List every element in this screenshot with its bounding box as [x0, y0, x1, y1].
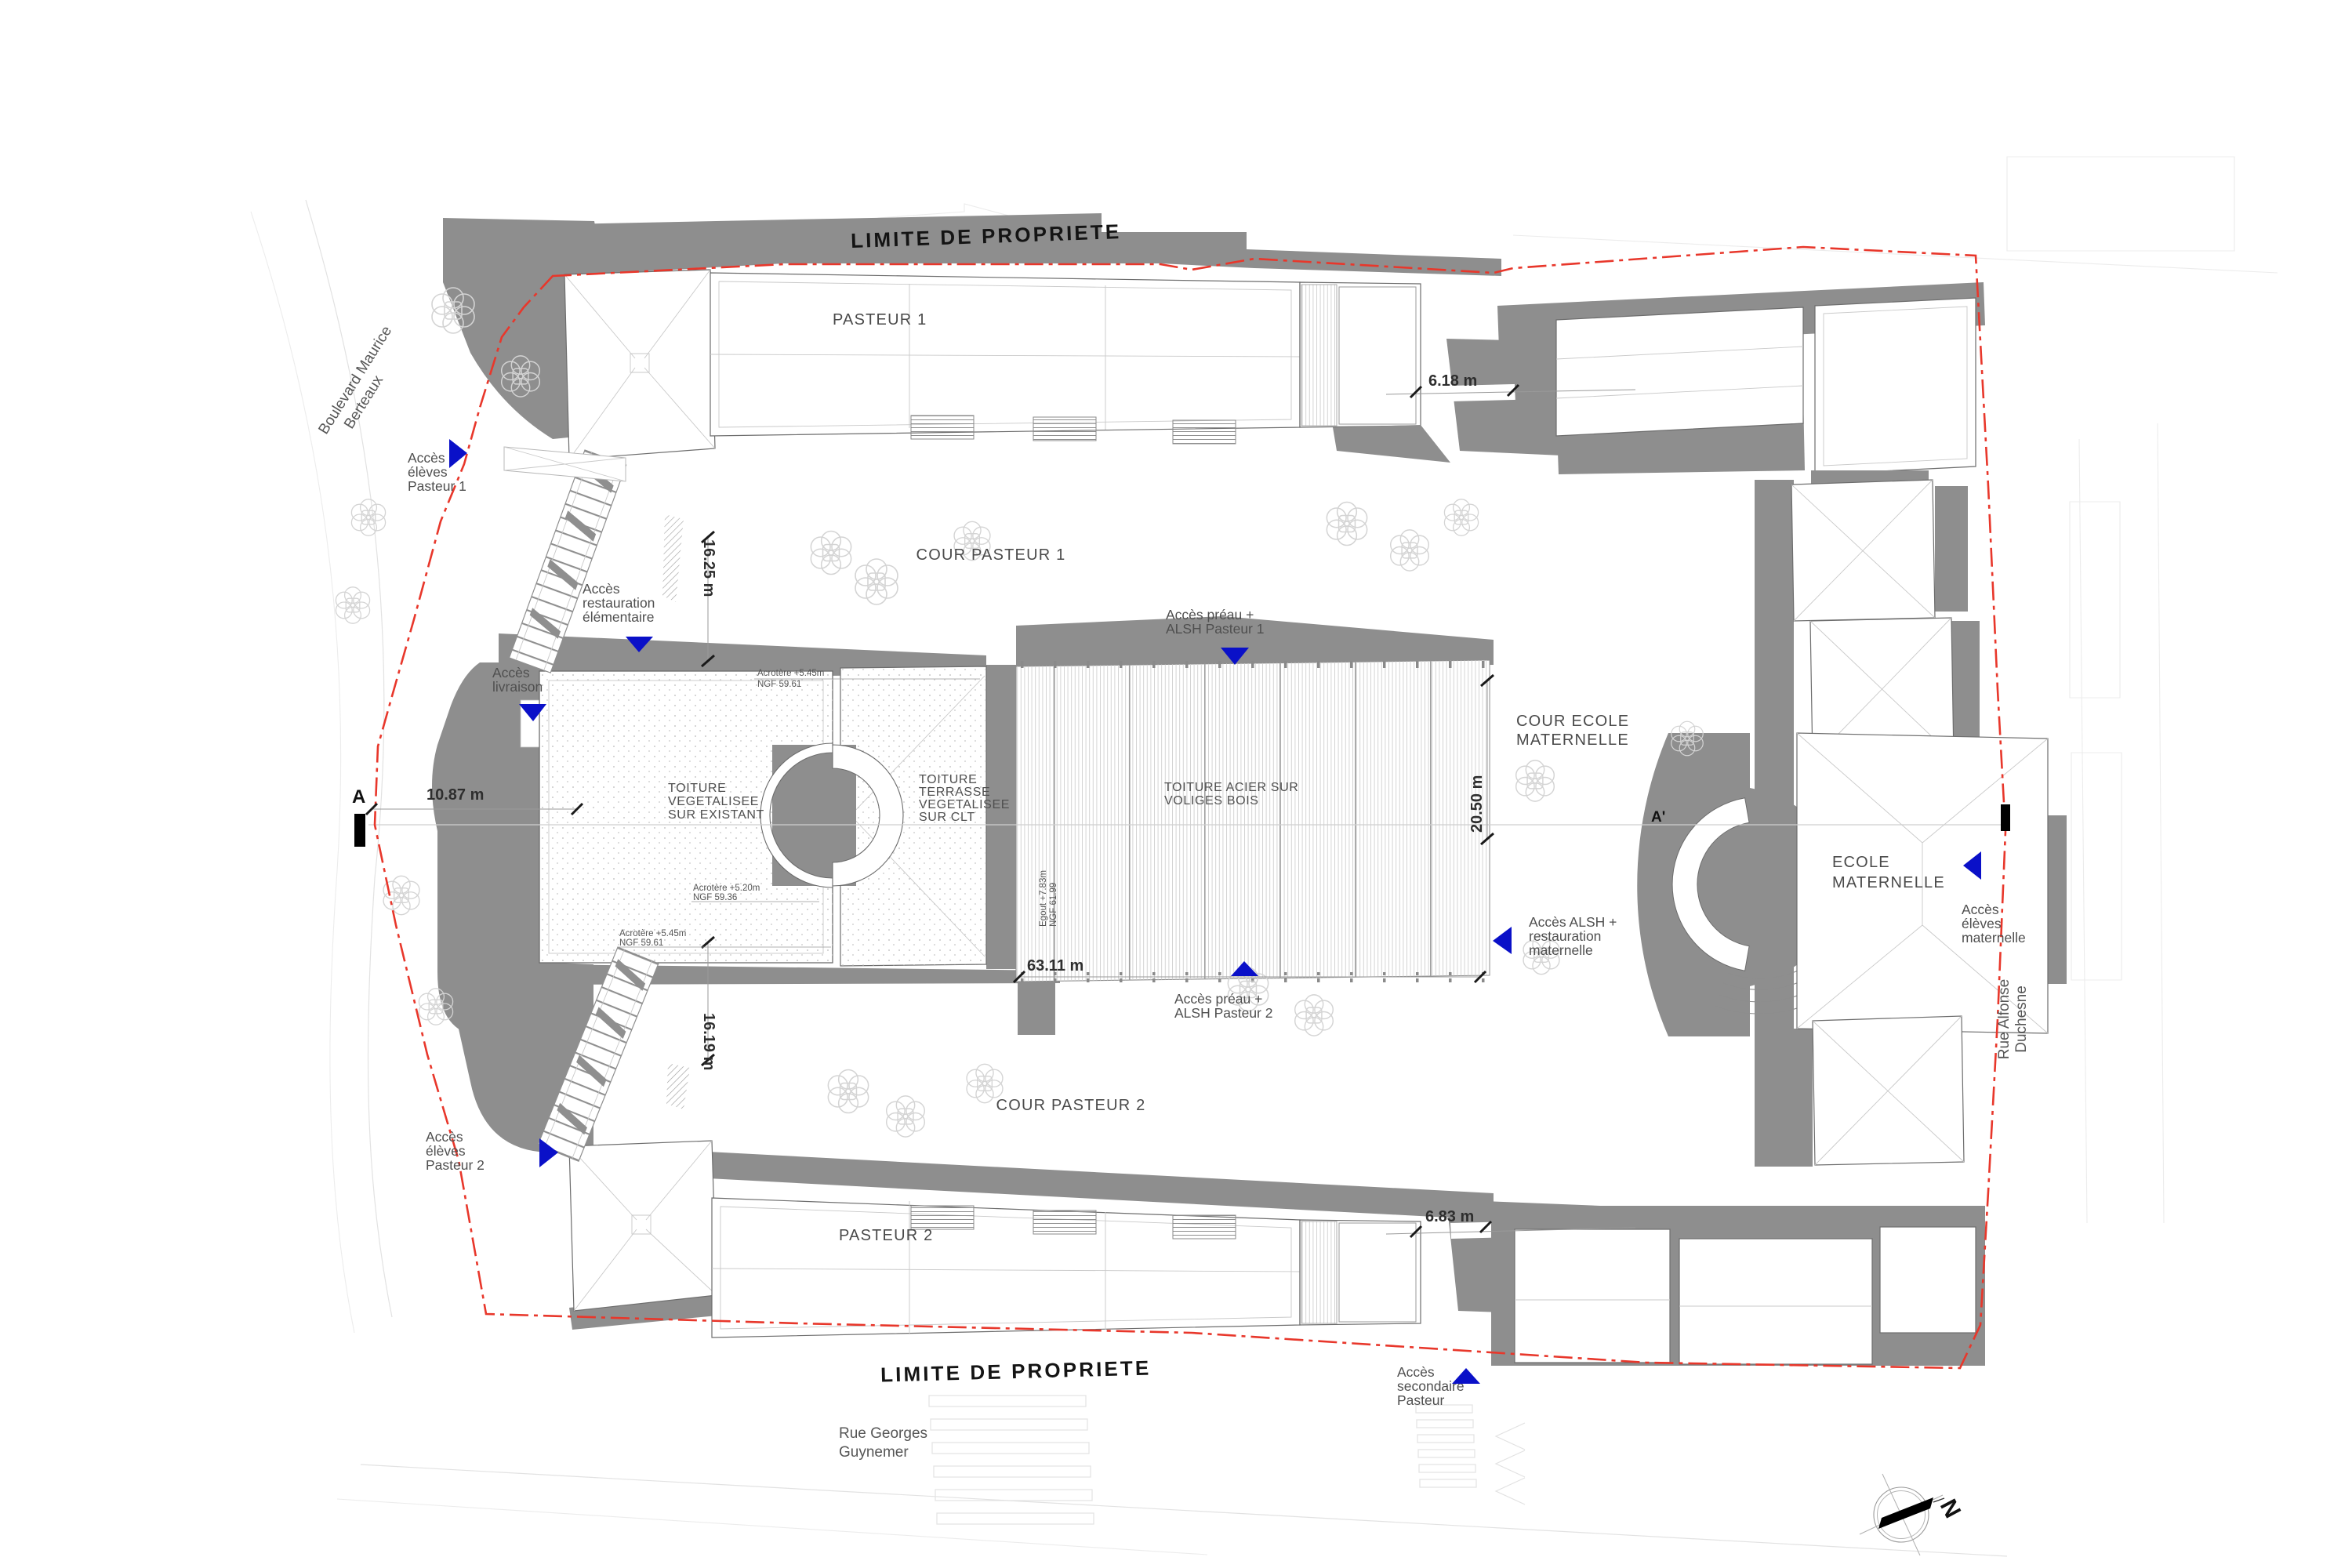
pasteur1-long-roof — [710, 273, 1300, 436]
ter-line4: SUR CLT — [919, 811, 975, 824]
bottom-right-roof-1 — [1515, 1229, 1670, 1363]
acrotere-s-line1: Acrotère +5.45m — [619, 929, 686, 938]
access-secondaire: Accès secondaire Pasteur — [1397, 1364, 1480, 1408]
cour-ecole-maternelle-label: COUR ECOLE MATERNELLE — [1516, 713, 1629, 749]
acc-alsh-l1: Accès ALSH + — [1529, 914, 1617, 930]
pasteur2-east-wing-panel — [1339, 1223, 1416, 1322]
building-pasteur2 — [569, 1141, 1494, 1338]
access-alsh-maternelle: Accès ALSH + restauration maternelle — [1493, 914, 1617, 958]
acc-ep1-l2: élèves — [408, 464, 448, 480]
bottom-street-line-1 — [361, 1465, 2007, 1556]
maternelle-gray-2 — [1951, 621, 1980, 754]
acc-em-l3: maternelle — [1962, 930, 2026, 946]
acc-em-l1: Accès — [1962, 902, 1999, 917]
acc-ep1-l3: Pasteur 1 — [408, 478, 466, 494]
access-arrow-secondaire — [1452, 1368, 1480, 1384]
acc-ep2-l2: élèves — [426, 1143, 466, 1159]
acc-sec-l1: Accès — [1397, 1364, 1435, 1380]
section-a-prime-bar — [2001, 804, 2010, 831]
parking-slots-center — [1416, 1405, 1476, 1487]
pasteur1-pavilion-roof — [564, 270, 715, 459]
acier-line2: VOLIGES BOIS — [1164, 794, 1259, 808]
veg-line3: SUR EXISTANT — [668, 808, 764, 822]
acc-ep1-l1: Accès — [408, 450, 445, 466]
top-right-street-line — [1513, 235, 2278, 273]
acrotere-mid-line2: NGF 59.36 — [693, 893, 737, 902]
veg-line2: VEGETALISEE — [668, 795, 759, 808]
site-plan-canvas: 16.25 m 16.19 m 10.87 m 20.50 m 63.11 m … — [0, 0, 2352, 1568]
veg-line1: TOITURE — [668, 782, 726, 795]
access-arrow-alsh — [1493, 927, 1512, 954]
center-south-wedge — [1018, 983, 1055, 1035]
pasteur2-east-wing-ribbed — [1301, 1221, 1337, 1323]
rue-georges-label: Rue Georges Guynemer — [839, 1425, 927, 1461]
acrotere-mid-line1: Acrotère +5.20m — [693, 884, 760, 893]
dim-63-11-label: 63.11 m — [1027, 957, 1083, 975]
ecole-maternelle-line2: MATERNELLE — [1832, 874, 1945, 891]
acc-em-l2: élèves — [1962, 916, 2002, 931]
hatch-wedge-south — [666, 1063, 690, 1109]
section-marker-left: A — [352, 786, 365, 847]
building-pasteur1 — [563, 213, 1501, 463]
egout-line1: Egout +7.83m — [1039, 870, 1048, 927]
pasteur2-label: PASTEUR 2 — [839, 1227, 933, 1244]
pasteur1-east-wing-ribbed — [1301, 285, 1337, 426]
dim-10-87-label: 10.87 m — [426, 786, 484, 804]
bottom-right-roof-2 — [1679, 1239, 1872, 1364]
rue-georges-line2: Guynemer — [839, 1444, 909, 1461]
acier-line1: TOITURE ACIER SUR — [1164, 781, 1299, 794]
hatch-wedge-north — [662, 514, 684, 602]
parking-slots-left — [929, 1396, 1094, 1524]
terrasse-east-band — [986, 665, 1016, 969]
dim-16-25-label: 16.25 m — [700, 539, 717, 597]
rue-alfonse-label: Rue Alfonse Duchesne — [1996, 979, 2030, 1059]
pasteur1-east-shadow — [1333, 425, 1450, 463]
bottom-street-line-2 — [337, 1499, 1207, 1555]
acc-alsh-l3: maternelle — [1529, 942, 1593, 958]
acc-liv-l2: livraison — [492, 679, 543, 695]
ter-line2: TERRASSE — [919, 786, 990, 799]
acc-pp2-l1: Accès préau + — [1174, 991, 1262, 1007]
dim-20-50-label: 20.50 m — [1468, 775, 1486, 833]
acc-liv-l1: Accès — [492, 665, 530, 681]
buildings-bottom-right — [1446, 1200, 1985, 1366]
cour-pasteur2-label: COUR PASTEUR 2 — [996, 1097, 1146, 1114]
ecole-maternelle-line1: ECOLE — [1832, 854, 1890, 871]
buildings-top-right — [1446, 282, 1985, 474]
rue-alfonse-line2: Duchesne — [2013, 985, 2030, 1053]
section-a-prime-label: A' — [1651, 809, 1665, 826]
boulevard-label: Boulevard Maurice Berteaux — [315, 323, 411, 447]
dim-6-18-label: 6.18 m — [1428, 372, 1477, 390]
acc-pp1-l1: Accès préau + — [1166, 607, 1254, 622]
acc-alsh-l2: restauration — [1529, 928, 1601, 944]
acc-sec-l3: Pasteur — [1397, 1392, 1444, 1408]
maternelle-gray-3 — [2046, 815, 2067, 984]
cour-ecole-line1: COUR ECOLE — [1516, 713, 1629, 730]
north-arrow: N — [1860, 1474, 1965, 1555]
cour-pasteur1-label: COUR PASTEUR 1 — [916, 546, 1066, 564]
maternelle-gray-1 — [1935, 486, 1968, 612]
pasteur1-east-wing-panel — [1339, 287, 1416, 424]
boulevard-curb-outer — [306, 200, 392, 1317]
section-a-bar — [354, 814, 365, 847]
access-eleves-pasteur1: Accès élèves Pasteur 1 — [408, 439, 467, 494]
pasteur1-label: PASTEUR 1 — [833, 311, 927, 328]
acrotere-s-line2: NGF 59.61 — [619, 938, 663, 948]
limite-propriete-bottom: LIMITE DE PROPRIETE — [880, 1356, 1152, 1386]
dim-6-83-label: 6.83 m — [1425, 1208, 1474, 1225]
preau-columns-north — [1019, 661, 1490, 671]
acc-ep2-l3: Pasteur 2 — [426, 1157, 485, 1173]
cour-ecole-line2: MATERNELLE — [1516, 731, 1629, 749]
ter-line3: VEGETALISEE — [919, 798, 1010, 811]
acc-rest-l3: élémentaire — [583, 609, 654, 625]
parking-chevrons — [1496, 1423, 1525, 1504]
bottom-right-roof-3 — [1880, 1227, 1976, 1333]
roof-steel-ribs-major — [1016, 660, 1490, 982]
acrotere-n-line2: NGF 59.61 — [757, 680, 801, 689]
ter-line1: TOITURE — [919, 773, 977, 786]
boulevard-curb-inner — [251, 212, 354, 1333]
acc-rest-l1: Accès — [583, 581, 620, 597]
top-right-roof-2 — [1815, 298, 1976, 474]
section-a-label: A — [352, 786, 365, 808]
acc-pp2-l2: ALSH Pasteur 2 — [1174, 1005, 1272, 1021]
acc-pp1-l2: ALSH Pasteur 1 — [1166, 621, 1264, 637]
site-plan-drawing: 16.25 m 16.19 m 10.87 m 20.50 m 63.11 m … — [0, 0, 2352, 1568]
rue-alfonse-line1: Rue Alfonse — [1996, 979, 2013, 1059]
top-right-roof-1 — [1556, 307, 1803, 436]
dim-16-19-label: 16.19 m — [700, 1013, 717, 1070]
rue-georges-line1: Rue Georges — [839, 1425, 927, 1442]
acc-rest-l2: restauration — [583, 595, 655, 611]
acrotere-n-line1: Acrotère +5.45m — [757, 669, 824, 678]
pasteur2-pavilion-roof — [569, 1141, 717, 1311]
acc-sec-l2: secondaire — [1397, 1378, 1465, 1394]
north-letter: N — [1935, 1495, 1965, 1523]
egout-line2: NGF 61.99 — [1049, 883, 1058, 927]
acc-ep2-l1: Accès — [426, 1129, 463, 1145]
